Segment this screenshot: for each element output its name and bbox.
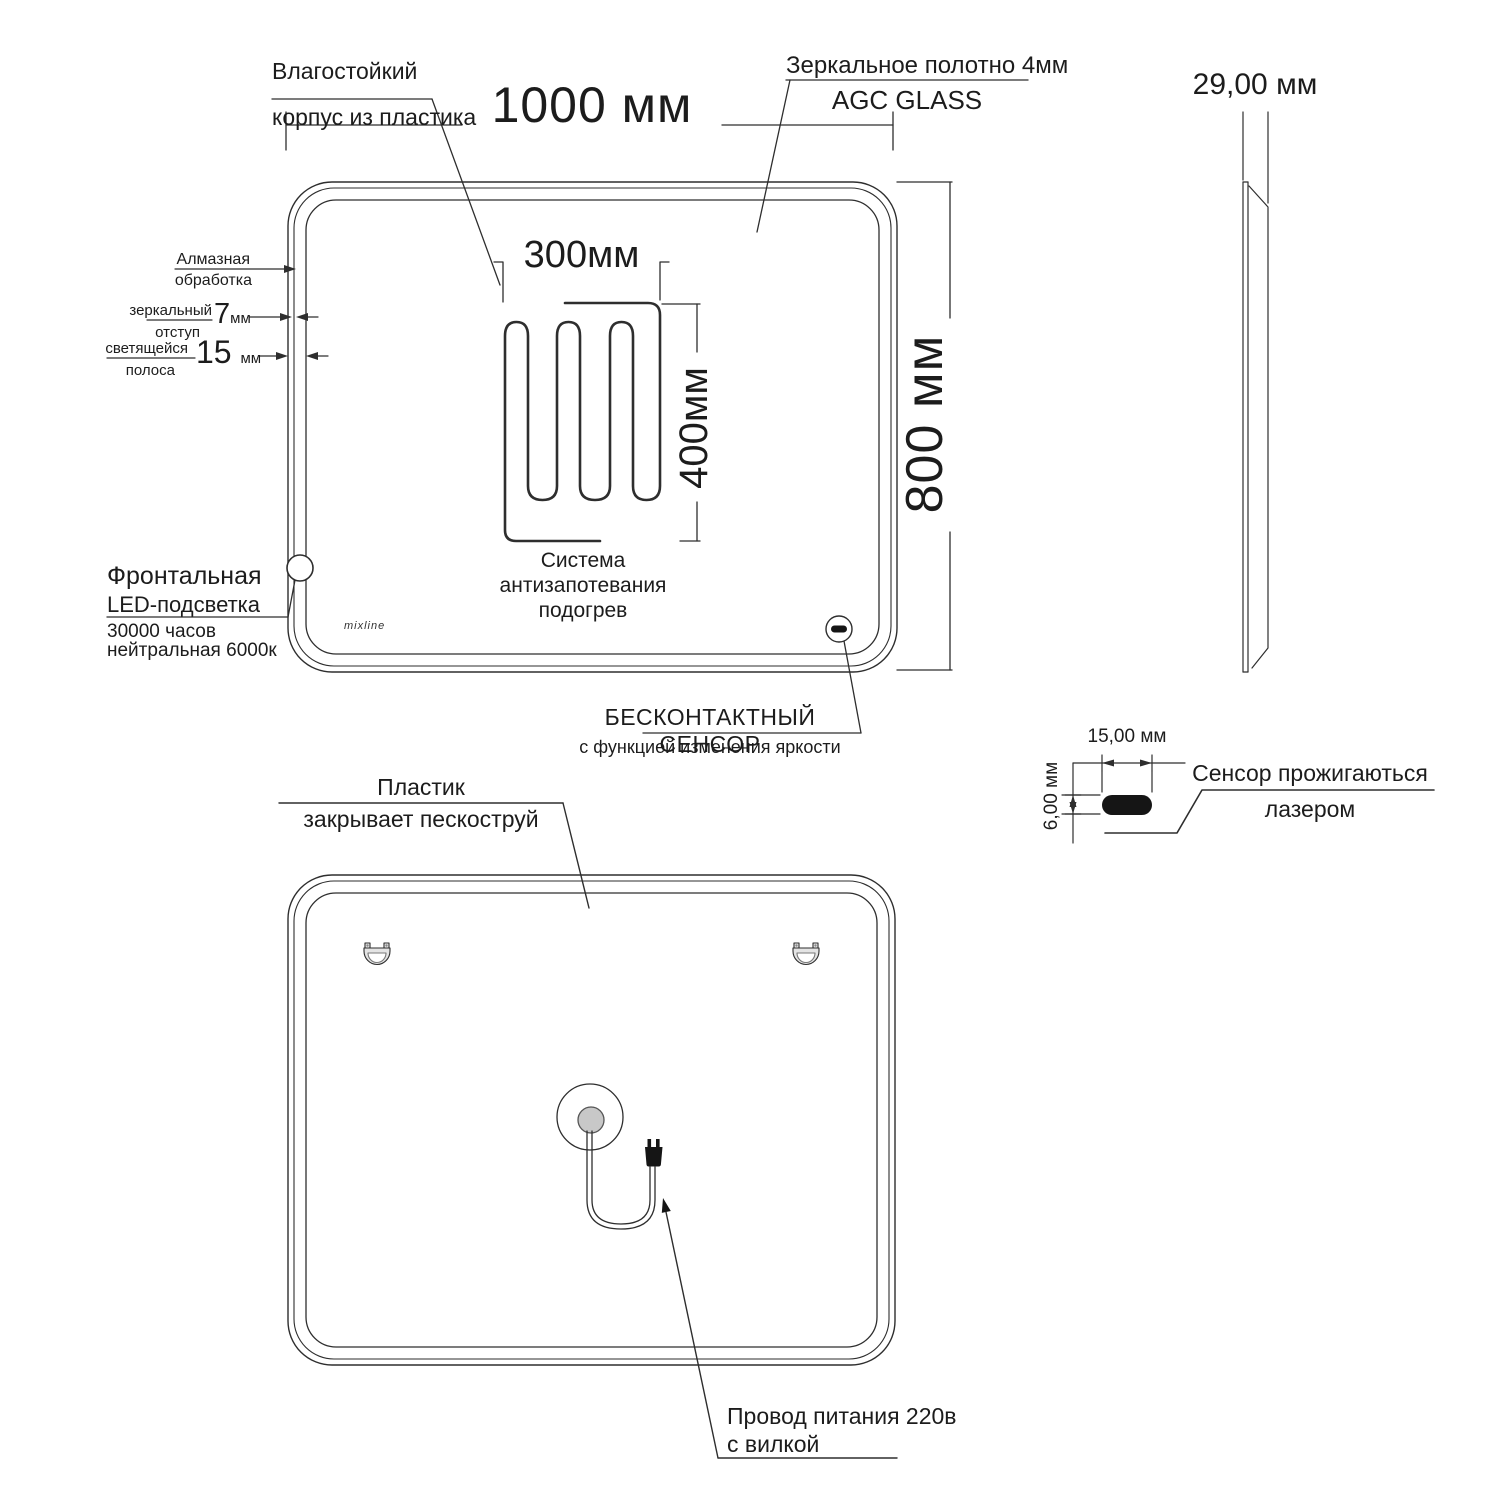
heater-coil [505,303,660,541]
power-cable [557,1084,663,1229]
dimension-height-value: 800 мм [895,314,951,534]
sensor-detail-label-line1: Сенсор прожигаються [1185,760,1435,787]
led-label-line1: Фронтальная [107,562,262,591]
plastic-label-line1: Пластик [279,774,563,801]
sensor-detail-width: 15,00 мм [1062,726,1192,748]
strip-label-line2: полоса [85,362,175,379]
side-depth-value: 29,00 мм [1140,68,1370,102]
heater-width-value: 300мм [503,234,660,277]
side-view-profile [1243,112,1268,672]
glass-label-line2: AGC GLASS [786,85,1028,116]
mounting-hook-right [793,943,819,965]
offset-label-line1: зеркальный [100,302,212,319]
strip-value: 15 мм [196,334,261,371]
led-label-line2: LED-подсветка [107,592,260,618]
heater-caption-line3: подогрев [483,598,683,623]
edge-label-line2: обработка [130,272,252,290]
case-label-line2: корпус из пластика [272,104,476,131]
offset-unit: мм [230,310,251,327]
offset-value: 7мм [214,298,251,331]
offset-number: 7 [214,298,230,330]
sensor-detail-label-line2: лазером [1185,796,1435,823]
plug-icon [645,1139,663,1167]
edge-label-line1: Алмазная [130,251,250,269]
led-label-line4: нейтральная 6000к [107,640,277,662]
sensor-detail-height: 6,00 мм [1041,751,1065,841]
offset-label-line2: отступ [100,324,200,341]
technical-drawing-mirror: Влагостойкий корпус из пластика 1000 мм … [0,0,1500,1500]
heater-caption-line2: антизапотевания [483,573,683,598]
strip-number: 15 [196,334,232,370]
cable-label-line2: с вилкой [727,1431,819,1458]
sensor-pill [1102,795,1152,815]
cable-label-line1: Провод питания 220в [727,1403,957,1430]
case-label-line1: Влагостойкий [272,58,417,85]
brand-logo: mixline [344,620,385,632]
heater-caption: Система антизапотевания подогрев [483,548,683,624]
strip-label-line1: светящейся [85,340,188,357]
dimension-width-value: 1000 мм [450,76,734,134]
mounting-hook-left [364,943,390,965]
plastic-label-line2: закрывает пескоструй [279,806,563,833]
glass-label-line1: Зеркальное полотно 4мм [786,52,1068,80]
heater-caption-line1: Система [483,548,683,573]
strip-unit: мм [240,350,261,367]
heater-height-value: 400мм [672,348,720,508]
sensor-label-line2: с функцией изменения яркости [558,737,862,758]
